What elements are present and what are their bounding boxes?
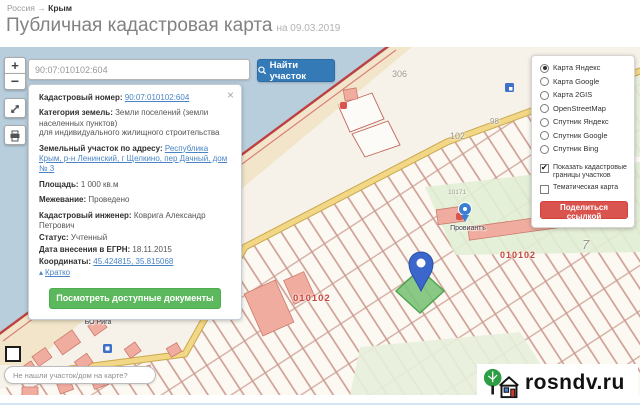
search-input[interactable] [28, 59, 250, 80]
view-documents-button[interactable]: Посмотреть доступные документы [49, 288, 221, 309]
field-status: Статус: Учтенный [39, 233, 231, 243]
radio-icon [540, 145, 549, 154]
quarter-label-010102-a: 010102 [293, 293, 331, 304]
close-icon[interactable]: × [227, 89, 234, 101]
overlay-option-thematic-map[interactable]: ✔ Тематическая карта [540, 184, 627, 194]
cadastral-map-page: Россия → Крым Публичная кадастровая карт… [0, 0, 640, 409]
field-label: Категория земель: [39, 108, 113, 117]
radio-icon [540, 64, 549, 73]
layer-option-map-google[interactable]: Карта Google [540, 77, 627, 87]
checkbox-icon: ✔ [540, 164, 549, 173]
field-value: Учтенный [71, 233, 107, 242]
field-label: Координаты: [39, 257, 91, 266]
coordinates-link[interactable]: 45.424815, 35.815068 [93, 257, 173, 266]
radio-icon [540, 77, 549, 86]
poi-label-bo-riga: БО Рига [75, 319, 121, 326]
field-category-note: для индивидуального жилищного строительс… [39, 128, 231, 138]
find-parcel-button[interactable]: Найти участок [257, 59, 335, 82]
zoom-in-button[interactable]: + [4, 57, 26, 74]
field-label: Земельный участок по адресу: [39, 144, 163, 153]
share-link-button[interactable]: Поделиться ссылкой [540, 201, 628, 219]
field-label: Дата внесения в ЕГРН: [39, 245, 130, 254]
field-area: Площадь: 1 000 кв.м [39, 180, 231, 190]
parcel-info-panel: × Кадастровый номер: 90:07:010102:604 Ка… [28, 84, 242, 320]
breadcrumb: Россия → Крым [7, 3, 72, 13]
field-label: Межевание: [39, 195, 86, 204]
field-label: Площадь: [39, 180, 79, 189]
collapse-arrow-icon: ▴ [39, 268, 43, 278]
cadastral-number-link[interactable]: 90:07:010102:604 [125, 93, 190, 102]
layers-panel: Карта Яндекс Карта Google Карта 2GIS Ope… [531, 55, 635, 228]
print-button[interactable] [4, 125, 26, 145]
quarter-label-010102-b: 010102 [500, 250, 536, 260]
field-label: Кадастровый инженер: [39, 211, 132, 220]
field-address: Земельный участок по адресу: Республика … [39, 144, 231, 175]
collapse-link[interactable]: ▴Кратко [39, 268, 231, 278]
field-value: 1 000 кв.м [81, 180, 119, 189]
radio-icon [540, 104, 549, 113]
poi-label-proviant: Провиантъ [438, 225, 498, 232]
field-land-category: Категория земель: Земли поселений (земли… [39, 108, 231, 129]
field-surveying: Межевание: Проведено [39, 195, 231, 205]
layer-option-satellite-google[interactable]: Спутник Google [540, 131, 627, 141]
search-icon [258, 66, 267, 75]
printer-icon [9, 130, 21, 142]
map-label-306: 306 [392, 69, 407, 79]
field-label: Статус: [39, 233, 69, 242]
checkbox-icon: ✔ [540, 185, 549, 194]
field-coordinates: Координаты: 45.424815, 35.815068 [39, 257, 231, 267]
site-logo-text: rosndv.ru [525, 371, 625, 395]
collapse-link-label: Кратко [45, 268, 70, 277]
radio-icon [540, 118, 549, 127]
radio-icon [540, 131, 549, 140]
field-engineer: Кадастровый инженер: Коврига Александр П… [39, 211, 231, 232]
measure-arrows-icon [9, 103, 21, 115]
map-area[interactable]: 306 98 102 10171 7 7 010102 010102 Прови… [0, 47, 640, 395]
layer-option-map-yandex[interactable]: Карта Яндекс [540, 63, 627, 73]
radio-icon [540, 91, 549, 100]
find-parcel-button-label: Найти участок [270, 60, 334, 82]
map-label-10171: 10171 [448, 189, 466, 196]
layer-option-satellite-bing[interactable]: Спутник Bing [540, 144, 627, 154]
page-title-text: Публичная кадастровая карта [6, 15, 272, 36]
field-cadastral-number: Кадастровый номер: 90:07:010102:604 [39, 93, 231, 103]
map-extent-button[interactable] [5, 346, 21, 362]
breadcrumb-country-link[interactable]: Россия [7, 3, 35, 13]
tree-house-logo-icon [483, 367, 520, 399]
page-title-date: на 09.03.2019 [276, 23, 340, 34]
map-label-7-street: 7 [582, 237, 589, 252]
field-label: Кадастровый номер: [39, 93, 123, 102]
layer-option-openstreetmap[interactable]: OpenStreetMap [540, 104, 627, 114]
map-label-98: 98 [490, 117, 499, 126]
measure-button[interactable] [4, 98, 26, 118]
field-value: Проведено [88, 195, 129, 204]
footer-divider [0, 403, 640, 405]
breadcrumb-region: Крым [48, 3, 72, 13]
map-label-102: 102 [450, 131, 465, 141]
layer-option-satellite-yandex[interactable]: Спутник Яндекс [540, 117, 627, 127]
field-egrn-date: Дата внесения в ЕГРН: 18.11.2015 [39, 245, 231, 255]
site-logo: rosndv.ru [477, 364, 638, 402]
find-on-map-input[interactable] [4, 366, 156, 384]
zoom-out-button[interactable]: − [4, 73, 26, 90]
overlay-option-cadastral-borders[interactable]: ✔ Показать кадастровые границы участков [540, 164, 627, 181]
page-title: Публичная кадастровая картана 09.03.2019 [6, 15, 340, 37]
breadcrumb-arrow: → [37, 3, 46, 13]
layer-option-map-2gis[interactable]: Карта 2GIS [540, 90, 627, 100]
field-value: 18.11.2015 [132, 245, 171, 254]
